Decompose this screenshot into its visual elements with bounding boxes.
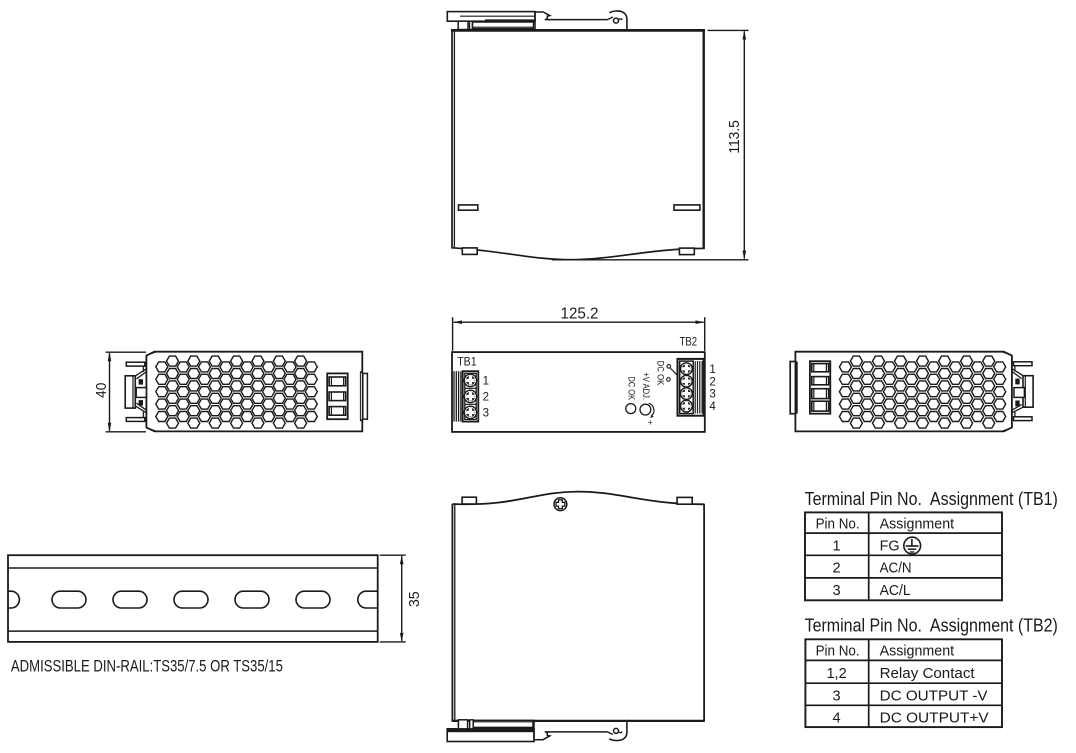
svg-text:FG: FG <box>880 539 900 555</box>
svg-text:DC OUTPUT -V: DC OUTPUT -V <box>880 689 988 705</box>
svg-text:113.5: 113.5 <box>726 120 743 154</box>
svg-text:3: 3 <box>483 408 489 420</box>
svg-text:1: 1 <box>483 376 489 388</box>
svg-text:Pin No.: Pin No. <box>816 517 860 533</box>
svg-text:TB1: TB1 <box>457 357 477 369</box>
svg-text:2: 2 <box>833 561 841 577</box>
svg-text:40: 40 <box>93 383 110 398</box>
svg-text:3: 3 <box>709 389 715 401</box>
svg-text:TB2: TB2 <box>680 336 698 348</box>
svg-text:DC OK: DC OK <box>626 377 637 401</box>
svg-text:2: 2 <box>709 376 715 388</box>
svg-text:Pin No.: Pin No. <box>816 644 860 660</box>
svg-text:3: 3 <box>833 583 841 599</box>
svg-text:1,2: 1,2 <box>826 666 846 682</box>
svg-text:1: 1 <box>833 539 841 555</box>
svg-text:Terminal Pin No. Assignment (: Terminal Pin No. Assignment (TB1) <box>805 489 1058 509</box>
svg-text:DC OUTPUT+V: DC OUTPUT+V <box>880 710 989 726</box>
svg-text:+V ADJ.: +V ADJ. <box>640 372 651 400</box>
svg-text:Assignment: Assignment <box>880 644 955 660</box>
svg-text:Terminal Pin No. Assignment (: Terminal Pin No. Assignment (TB2) <box>805 616 1058 636</box>
svg-text:4: 4 <box>709 401 716 413</box>
svg-text:4: 4 <box>833 710 841 726</box>
svg-text:Relay Contact: Relay Contact <box>880 666 975 682</box>
svg-text:+: + <box>648 417 653 427</box>
svg-text:DC OK: DC OK <box>655 361 666 386</box>
svg-text:ADMISSIBLE DIN-RAIL:TS35/7.5 O: ADMISSIBLE DIN-RAIL:TS35/7.5 OR TS35/15 <box>11 658 283 676</box>
svg-text:125.2: 125.2 <box>561 305 599 322</box>
svg-text:AC/L: AC/L <box>880 583 911 599</box>
svg-text:1: 1 <box>709 364 715 376</box>
svg-text:Assignment: Assignment <box>880 517 955 533</box>
svg-text:3: 3 <box>833 689 841 705</box>
svg-text:2: 2 <box>483 392 489 404</box>
svg-text:35: 35 <box>406 591 423 607</box>
svg-text:AC/N: AC/N <box>880 561 912 577</box>
